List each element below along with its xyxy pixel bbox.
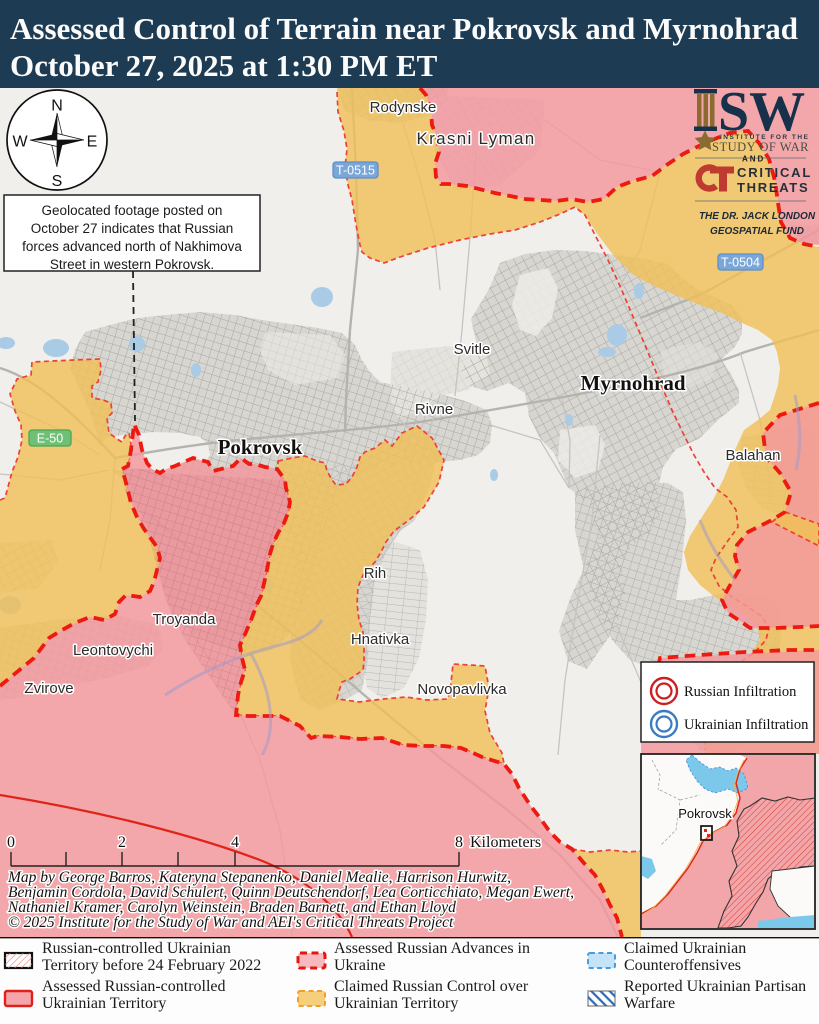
svg-text:GEOSPATIAL FUND: GEOSPATIAL FUND bbox=[710, 226, 804, 237]
svg-text:Assessed Russian Advances in: Assessed Russian Advances in bbox=[334, 940, 530, 957]
svg-text:Ukrainian Territory: Ukrainian Territory bbox=[334, 995, 458, 1012]
svg-text:Kilometers: Kilometers bbox=[470, 834, 541, 851]
svg-text:Pokrovsk: Pokrovsk bbox=[678, 806, 732, 821]
svg-text:STUDY OF WAR: STUDY OF WAR bbox=[712, 140, 809, 154]
svg-text:THREATS: THREATS bbox=[737, 180, 809, 195]
svg-text:Reported Ukrainian Partisan: Reported Ukrainian Partisan bbox=[624, 978, 806, 995]
svg-text:Counteroffensives: Counteroffensives bbox=[624, 957, 741, 974]
svg-text:Rih: Rih bbox=[364, 565, 387, 582]
svg-text:T-0504: T-0504 bbox=[721, 255, 760, 269]
svg-text:T-0515: T-0515 bbox=[336, 163, 375, 177]
svg-text:© 2025 Institute for the Study: © 2025 Institute for the Study of War an… bbox=[8, 914, 454, 931]
svg-text:Russian Infiltration: Russian Infiltration bbox=[684, 684, 797, 700]
svg-text:E-50: E-50 bbox=[37, 431, 63, 445]
svg-text:Claimed Russian Control over: Claimed Russian Control over bbox=[334, 978, 529, 995]
svg-text:Hnativka: Hnativka bbox=[351, 631, 410, 648]
svg-text:E: E bbox=[87, 134, 98, 151]
svg-text:8: 8 bbox=[455, 834, 463, 851]
svg-text:CRITICAL: CRITICAL bbox=[737, 165, 812, 180]
svg-text:Ukrainian Infiltration: Ukrainian Infiltration bbox=[684, 717, 809, 733]
svg-text:Troyanda: Troyanda bbox=[153, 611, 216, 628]
svg-text:Ukrainian Territory: Ukrainian Territory bbox=[42, 995, 166, 1012]
svg-text:Leontovychi: Leontovychi bbox=[73, 642, 153, 659]
svg-text:Claimed Ukrainian: Claimed Ukrainian bbox=[624, 940, 746, 957]
svg-text:Ukraine: Ukraine bbox=[334, 957, 386, 974]
svg-text:October 27 indicates that Russ: October 27 indicates that Russian bbox=[31, 221, 234, 236]
svg-text:Pokrovsk: Pokrovsk bbox=[218, 435, 303, 459]
svg-text:Rivne: Rivne bbox=[415, 401, 453, 418]
svg-text:Zvirove: Zvirove bbox=[24, 680, 73, 697]
svg-text:0: 0 bbox=[7, 834, 15, 851]
svg-text:Krasni Lyman: Krasni Lyman bbox=[417, 129, 536, 148]
svg-text:4: 4 bbox=[231, 834, 239, 851]
svg-text:W: W bbox=[12, 134, 28, 151]
svg-text:Svitle: Svitle bbox=[454, 341, 491, 358]
svg-text:Warfare: Warfare bbox=[624, 995, 675, 1012]
svg-text:Geolocated footage posted on: Geolocated footage posted on bbox=[42, 203, 223, 218]
svg-text:Street in western Pokrovsk.: Street in western Pokrovsk. bbox=[50, 257, 214, 272]
svg-text:AND: AND bbox=[742, 155, 765, 164]
svg-text:Assessed Control of Terrain ne: Assessed Control of Terrain near Pokrovs… bbox=[10, 11, 798, 46]
svg-text:S: S bbox=[52, 173, 63, 190]
svg-text:Novopavlivka: Novopavlivka bbox=[417, 681, 507, 698]
svg-text:N: N bbox=[51, 98, 63, 115]
svg-text:Territory before 24 February 2: Territory before 24 February 2022 bbox=[42, 957, 261, 974]
svg-text:2: 2 bbox=[118, 834, 126, 851]
svg-text:Rodynske: Rodynske bbox=[370, 99, 437, 116]
svg-text:Assessed Russian-controlled: Assessed Russian-controlled bbox=[42, 978, 226, 995]
svg-text:Russian-controlled Ukrainian: Russian-controlled Ukrainian bbox=[42, 940, 231, 957]
svg-text:forces advanced north of Nakhi: forces advanced north of Nakhimova bbox=[22, 239, 242, 254]
svg-text:Myrnohrad: Myrnohrad bbox=[581, 371, 686, 395]
svg-text:October 27, 2025 at 1:30 PM ET: October 27, 2025 at 1:30 PM ET bbox=[10, 48, 438, 83]
svg-text:Balahan: Balahan bbox=[725, 447, 780, 464]
svg-text:THE DR. JACK LONDON: THE DR. JACK LONDON bbox=[699, 211, 816, 222]
